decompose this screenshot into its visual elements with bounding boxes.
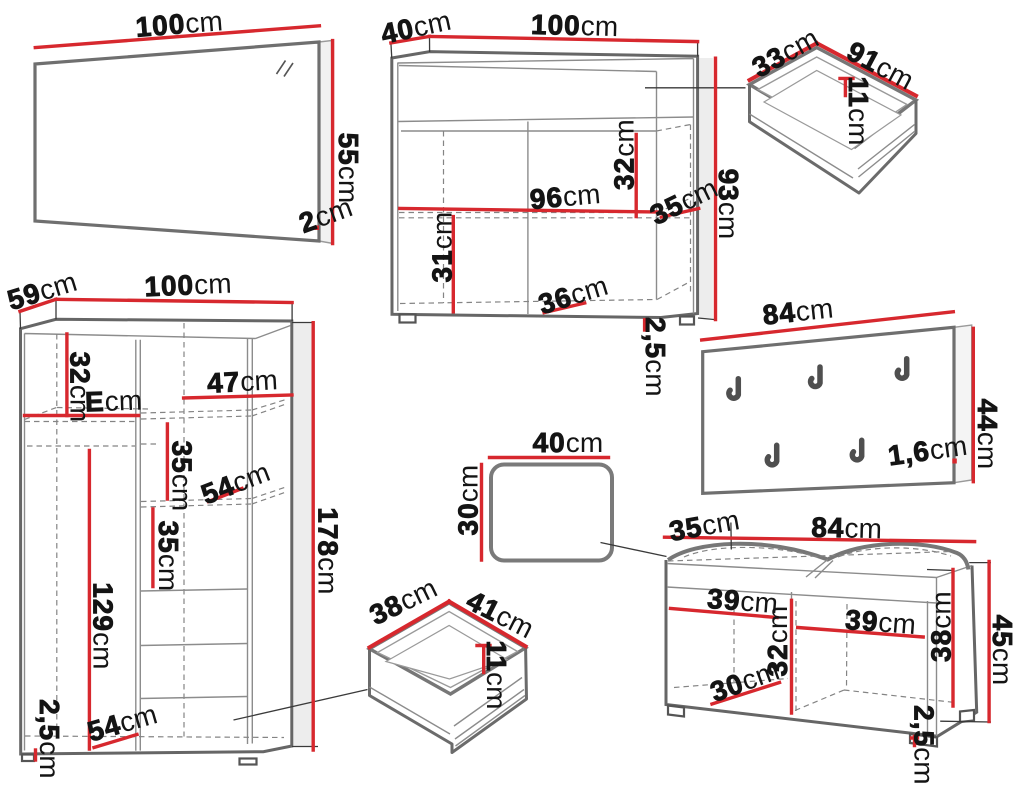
svg-text:2,5cm: 2,5cm: [640, 317, 671, 397]
svg-text:31cm: 31cm: [427, 212, 458, 283]
svg-text:129cm: 129cm: [88, 582, 119, 669]
svg-text:47cm: 47cm: [206, 364, 278, 399]
svg-text:35cm: 35cm: [153, 521, 184, 592]
svg-text:32cm: 32cm: [609, 119, 640, 190]
svg-text:45cm: 45cm: [987, 615, 1018, 686]
svg-text:11cm: 11cm: [843, 76, 874, 145]
svg-text:35cm: 35cm: [167, 441, 198, 512]
svg-text:55cm: 55cm: [333, 133, 364, 204]
svg-text:84cm: 84cm: [811, 512, 883, 545]
svg-text:2,5cm: 2,5cm: [909, 705, 940, 785]
svg-text:178cm: 178cm: [313, 507, 344, 594]
svg-text:Ecm: Ecm: [84, 385, 142, 418]
svg-text:100cm: 100cm: [144, 268, 233, 303]
svg-text:2,5cm: 2,5cm: [34, 699, 65, 779]
svg-text:44cm: 44cm: [972, 399, 1003, 470]
svg-text:30cm: 30cm: [453, 465, 484, 536]
svg-text:40cm: 40cm: [533, 427, 604, 458]
svg-text:96cm: 96cm: [529, 178, 602, 215]
svg-text:100cm: 100cm: [531, 9, 619, 42]
svg-text:93cm: 93cm: [713, 169, 744, 240]
svg-text:38cm: 38cm: [926, 591, 957, 662]
svg-text:11cm: 11cm: [481, 640, 512, 709]
svg-text:39cm: 39cm: [844, 604, 917, 640]
